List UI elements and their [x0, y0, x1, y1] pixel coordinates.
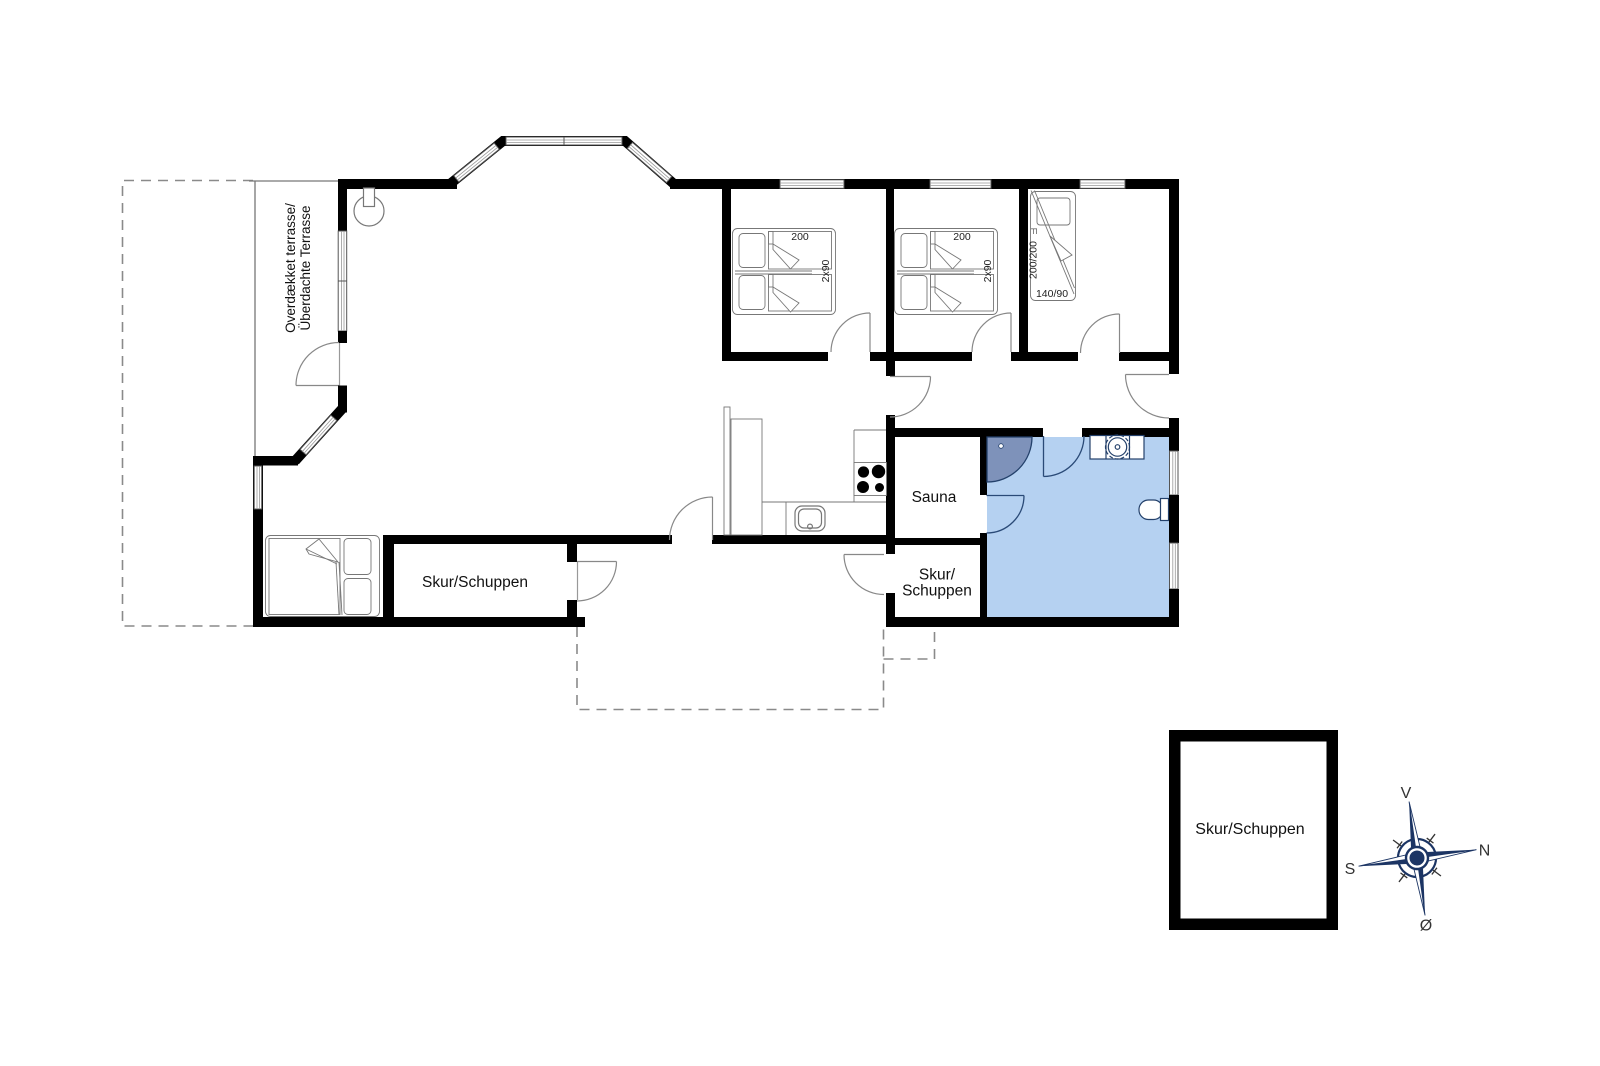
svg-text:Skur/Schuppen: Skur/Schuppen — [422, 574, 528, 591]
svg-text:200/200: 200/200 — [1028, 241, 1040, 279]
svg-text:2x90: 2x90 — [982, 259, 994, 282]
svg-text:Überdachte Terrasse: Überdachte Terrasse — [298, 205, 313, 330]
svg-text:Skur/Schuppen: Skur/Schuppen — [1195, 821, 1304, 838]
svg-text:200: 200 — [953, 231, 971, 243]
svg-text:200: 200 — [791, 231, 809, 243]
svg-text:N: N — [1479, 843, 1491, 860]
svg-text:Sauna: Sauna — [912, 489, 957, 506]
svg-text:V: V — [1401, 785, 1412, 802]
svg-text:140/90: 140/90 — [1036, 288, 1068, 300]
svg-text:Skur/: Skur/ — [919, 567, 956, 584]
svg-text:S: S — [1345, 861, 1356, 878]
svg-text:Ø: Ø — [1420, 918, 1432, 935]
svg-text:Schuppen: Schuppen — [902, 583, 972, 600]
svg-text:Overdækket terrasse/: Overdækket terrasse/ — [283, 203, 298, 333]
svg-text:2x90: 2x90 — [820, 259, 832, 282]
